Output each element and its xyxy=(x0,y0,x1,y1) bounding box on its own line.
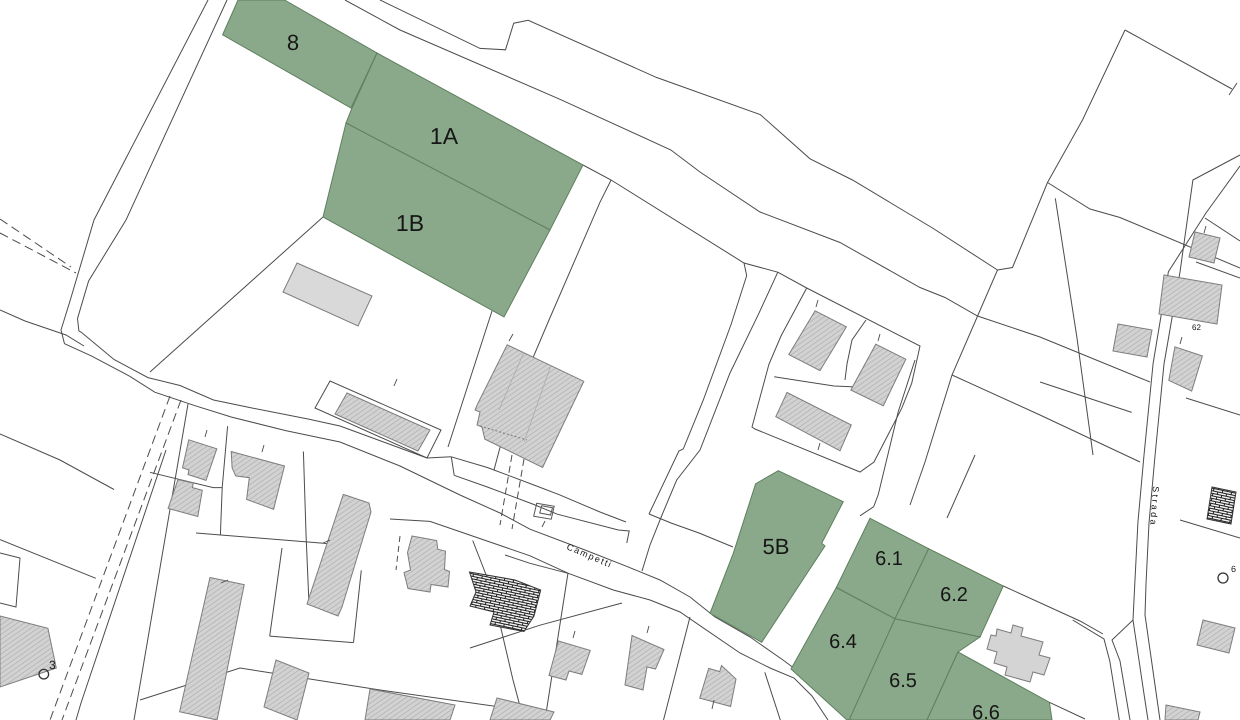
svg-text:3: 3 xyxy=(49,658,56,672)
svg-text:6.6: 6.6 xyxy=(972,702,1000,720)
svg-text:1B: 1B xyxy=(396,210,424,236)
svg-text:1A: 1A xyxy=(430,123,459,149)
svg-text:62: 62 xyxy=(1192,323,1201,332)
svg-text:5B: 5B xyxy=(763,534,790,559)
svg-text:6.2: 6.2 xyxy=(940,584,968,606)
svg-text:6.5: 6.5 xyxy=(889,670,917,692)
svg-text:6.4: 6.4 xyxy=(829,631,857,653)
svg-text:6: 6 xyxy=(1231,564,1236,574)
svg-text:6.1: 6.1 xyxy=(875,548,903,570)
svg-text:8: 8 xyxy=(287,30,299,55)
